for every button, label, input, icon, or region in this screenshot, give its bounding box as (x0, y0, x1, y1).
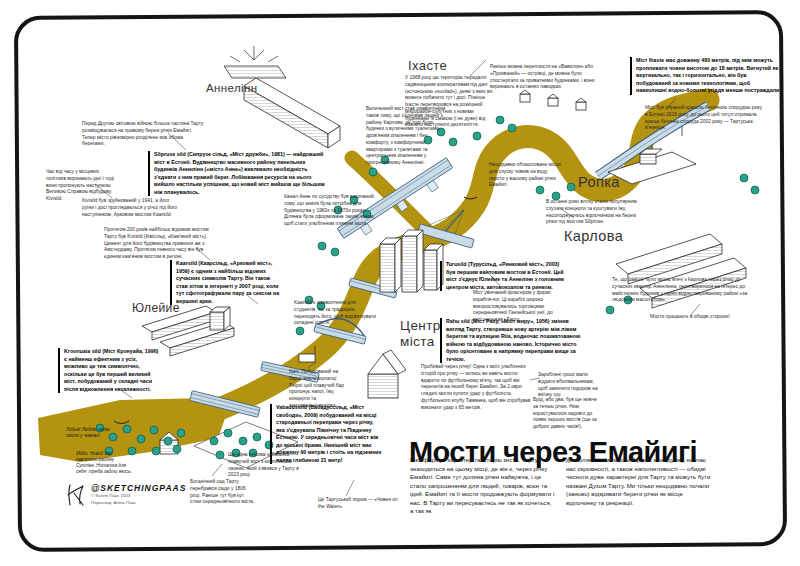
note-karlova-change: Те, що раніше було мрією втечі з Карлова… (612, 277, 762, 304)
note-moku-bar: Möku. Новий бар навпроти району Супілінн… (76, 451, 134, 475)
district-label-annelinn: Аннелінн (206, 82, 258, 94)
note-ferry: Це Тартуський пором — «Човен on the Wate… (318, 497, 398, 511)
note-both-ways: Мости працюють в обидві сторони! (650, 314, 760, 321)
note-turusild: Turusild (Турусільд, «Ринковий міст», 20… (440, 261, 566, 291)
building-ihaste-suvilad (520, 90, 586, 110)
artist-handle: @SKETCHINGPAAS (91, 483, 186, 493)
note-prewar: Перед Другою світовою війною більша част… (82, 121, 207, 148)
note-kivisild-history: Протягом 200 років найбільш відомим мост… (104, 227, 214, 261)
note-kaarsild-students: Kaarsild є символічним для студентів, як… (294, 300, 379, 327)
district-label-karlova: Карлова (564, 228, 623, 244)
note-ford: Брід, або два, був ще нижче за течією рі… (533, 397, 603, 431)
note-kogge-weathervane: Міст увінчаний флюгером у формі корабля-… (473, 290, 553, 324)
note-ihaste-bridge: Міст Ihaste має довжину 480 метрів, під … (630, 57, 781, 95)
building-annelinn-slab (224, 46, 340, 148)
note-riverside-concerts: В останні роки влітку стало популярним с… (546, 199, 638, 226)
intro-column-1: Ріка формує характер та історію міста. Т… (410, 456, 556, 516)
note-lodja: Лодья! Люблю запах смоли у човнах! (66, 427, 121, 439)
note-babylon: Раніше можна переплисти на «Вавилон» або… (490, 64, 598, 91)
building-market-house (368, 350, 406, 398)
note-sauna-bridge: Ще одна річкова забаганка — плавучий міс… (228, 452, 300, 479)
intro-column-2: дозволяють вам мости. Це, на мою думку, … (566, 456, 712, 507)
note-kroonuaia-sild: Kroonuaia sild (Міст Кронуайа, 1996) є н… (58, 348, 159, 393)
note-boat-launch: Нещодавно облаштоване місце для спуску ч… (489, 162, 561, 189)
note-concrete-award: Міст був обраний кращою бетонною спорудо… (645, 105, 765, 132)
note-football-story: Пробивай через річку! Одна з моїх улюбле… (421, 364, 533, 411)
note-kivisild-ruins: Kivisild був зруйнований у 1941, а його … (82, 198, 177, 218)
district-label-ihaste: Іхасте (408, 58, 447, 73)
district-label-ropka: Ропка (578, 174, 620, 190)
note-kaarsild: Kaarsild (Каарсільд, «Арковий міст», 195… (170, 260, 282, 305)
note-sopruse-sild: Sõpruse sild (Сипрузе сільд, «Міст дружб… (148, 151, 326, 196)
tartu-bridges-poster: Аннелінн Іхасте Ропка Карлова Юлейие Цен… (0, 0, 800, 566)
translation-credit: Переклад: Аліна Паас (91, 500, 186, 507)
note-anne-canal: Канал Анне по сусідству був викопаний то… (284, 194, 376, 228)
copyright-text: © Калле Паас 2023 (91, 493, 186, 500)
note-money: Зароблені гроші мали віддати вболівальни… (538, 372, 598, 399)
note-rahu-sild: Rahu sild (Міст Раху, «Міст миру», 1956)… (440, 318, 581, 363)
note-botanical-garden: Ботанічний сад Тарту перебрався сюди у 1… (190, 479, 256, 506)
signature-block: @SKETCHINGPAAS © Калле Паас 2023 Перекла… (66, 483, 186, 507)
note-karlova-link: Величезний міст став символічним також т… (366, 106, 448, 167)
sun-rays (230, 46, 278, 62)
artist-monogram-icon (66, 483, 86, 507)
